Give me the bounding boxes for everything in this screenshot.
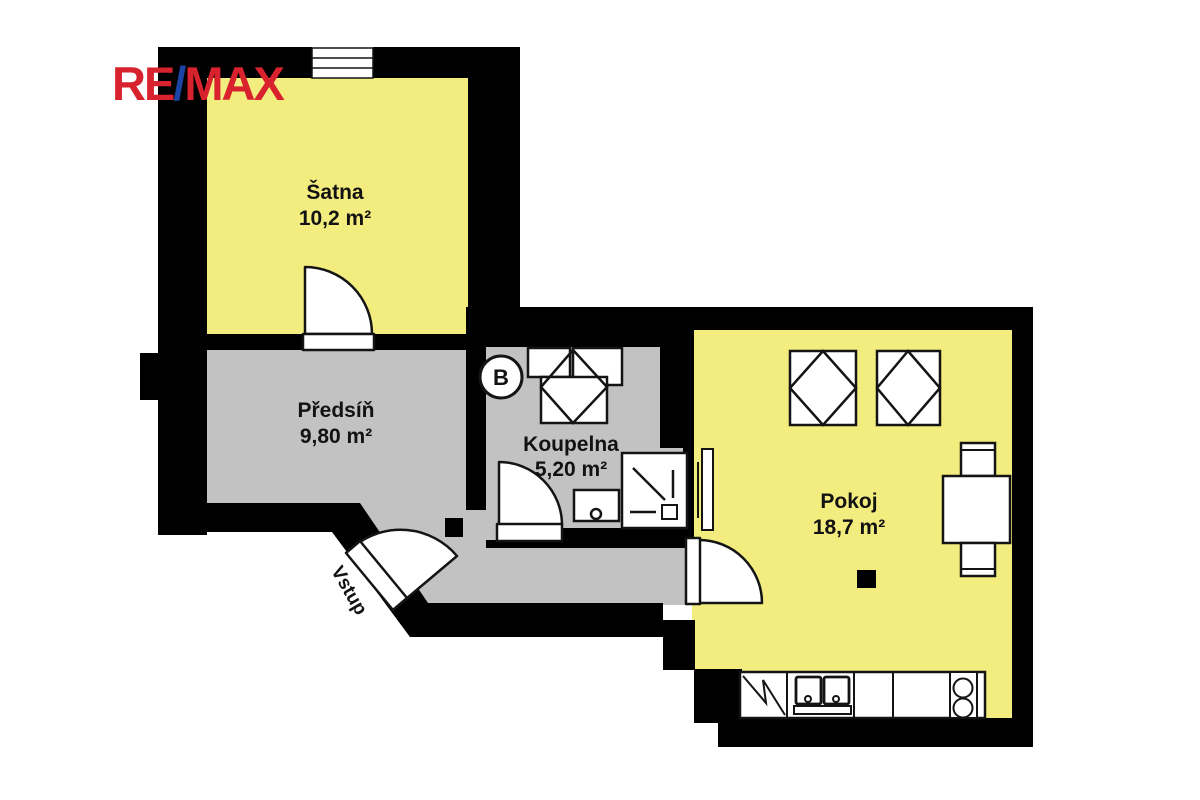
armchair-1 <box>790 351 856 425</box>
svg-text:RE/MAX: RE/MAX <box>112 57 284 110</box>
pokoj-name: Pokoj <box>820 490 877 513</box>
pokoj-bottom-wall <box>718 718 1033 747</box>
satna-name: Šatna <box>306 180 364 204</box>
pokoj-top-wall <box>660 307 1033 330</box>
pokoj-door-leaf <box>686 538 700 604</box>
satna-predsin-divider-left <box>207 334 305 350</box>
satna-window <box>312 48 373 78</box>
logo-re: RE <box>112 57 174 110</box>
kitchen-counter <box>740 672 985 718</box>
sink-tray <box>794 706 851 714</box>
boiler-letter: B <box>493 365 509 390</box>
bathroom-right-wall-upper <box>660 307 694 448</box>
predsin-name: Předsíň <box>297 399 374 422</box>
dining-table <box>943 476 1010 543</box>
hall-pillar <box>445 518 463 537</box>
satna-predsin-divider-right <box>373 334 468 350</box>
satna-door-leaf <box>303 334 374 350</box>
pokoj-right-wall <box>1012 307 1033 747</box>
dining-chair-bottom <box>961 543 995 576</box>
wall-radiator <box>702 449 713 530</box>
step-wall-1 <box>663 620 695 670</box>
shower-drain <box>662 505 677 519</box>
satna-left-wall <box>158 47 207 535</box>
bath-sink <box>574 490 619 521</box>
bathroom-top-wall <box>466 307 694 347</box>
pokoj-area: 18,7 m² <box>813 516 885 539</box>
window-frame <box>312 48 373 78</box>
armchair-2 <box>877 351 940 425</box>
kitchen-sink-right <box>824 677 849 704</box>
koupelna-area: 5,20 m² <box>535 458 607 481</box>
koupelna-name: Koupelna <box>523 433 619 456</box>
bathroom-door-leaf <box>497 524 562 541</box>
logo-max: MAX <box>184 57 284 110</box>
floorplan: B Šatna 10,2 m² Předsíň 9,80 <box>0 0 1200 800</box>
bathroom-bottom-wall <box>558 528 694 548</box>
satna-right-wall <box>468 47 520 347</box>
chimney-pillar <box>857 570 876 588</box>
left-wall-bump <box>140 353 160 400</box>
kitchen-sink-left <box>796 677 821 704</box>
dining-chair-top <box>961 443 995 476</box>
remax-logo: RE/MAX <box>112 57 284 110</box>
satna-area: 10,2 m² <box>299 207 371 230</box>
step-wall-2 <box>694 669 742 723</box>
kitchen-counter-outline <box>740 672 985 718</box>
predsin-area: 9,80 m² <box>300 425 372 448</box>
